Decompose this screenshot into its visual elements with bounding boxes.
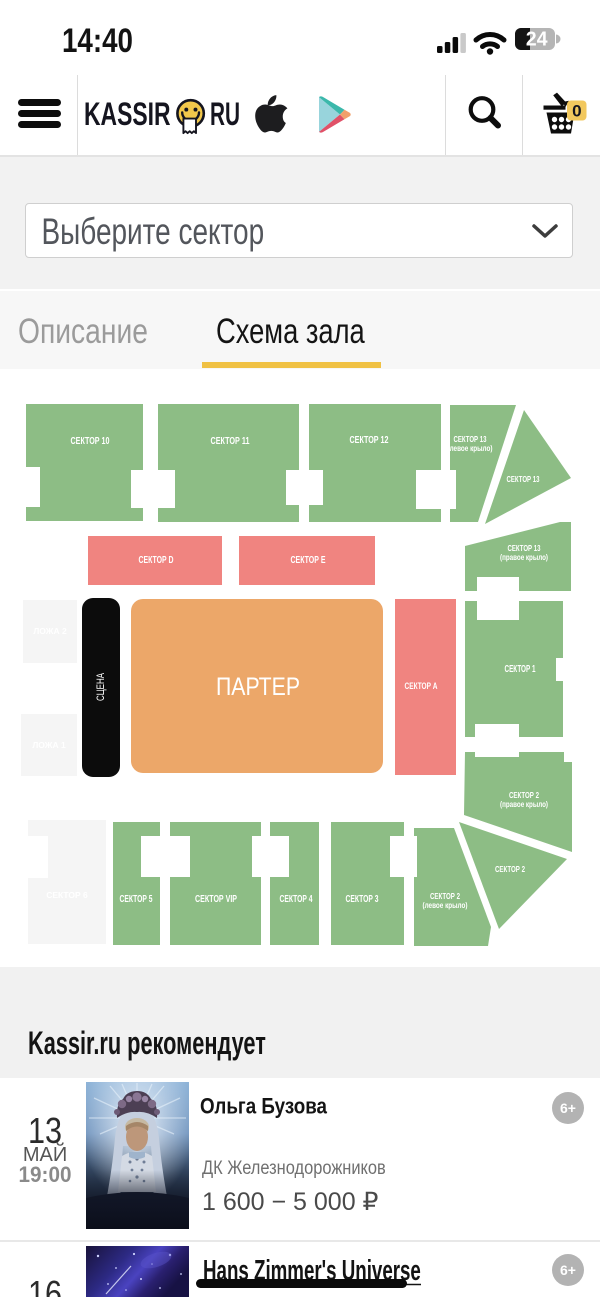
svg-text:СЕКТОР E: СЕКТОР E	[291, 555, 326, 566]
svg-text:СЕКТОР 10: СЕКТОР 10	[71, 436, 110, 447]
svg-text:(правое крыло): (правое крыло)	[500, 552, 548, 562]
svg-text:СЕКТОР 13: СЕКТОР 13	[507, 474, 540, 484]
svg-text:ЛОЖА 2: ЛОЖА 2	[33, 626, 67, 636]
svg-text:СЕКТОР D: СЕКТОР D	[139, 555, 174, 566]
svg-text:Схема зала: Схема зала	[216, 312, 365, 351]
svg-text:KASSIR: KASSIR	[84, 96, 171, 132]
svg-text:0: 0	[572, 102, 581, 121]
svg-text:Выберите сектор: Выберите сектор	[42, 210, 265, 252]
svg-text:СЕКТОР 6: СЕКТОР 6	[46, 890, 88, 900]
svg-text:СЕКТОР 5: СЕКТОР 5	[120, 894, 153, 905]
svg-text:СЕКТОР 2: СЕКТОР 2	[495, 864, 525, 874]
svg-text:ЛОЖА 1: ЛОЖА 1	[32, 740, 66, 750]
svg-text:СЕКТОР 4: СЕКТОР 4	[280, 894, 313, 905]
svg-text:24: 24	[526, 28, 548, 50]
svg-text:1 600 − 5 000 ₽: 1 600 − 5 000 ₽	[202, 1188, 379, 1216]
svg-text:ПАРТЕР: ПАРТЕР	[216, 673, 300, 701]
svg-text:(левое крыло): (левое крыло)	[423, 900, 468, 910]
svg-text:СЕКТОР 3: СЕКТОР 3	[346, 894, 379, 905]
svg-text:ДК Железнодорожников: ДК Железнодорожников	[202, 1157, 386, 1178]
svg-text:СЕКТОР 11: СЕКТОР 11	[211, 436, 250, 447]
svg-text:СЕКТОР 1: СЕКТОР 1	[505, 664, 536, 675]
svg-text:Описание: Описание	[18, 311, 148, 351]
svg-text:СЕКТОР 12: СЕКТОР 12	[350, 435, 389, 446]
svg-text:СЕКТОР VIP: СЕКТОР VIP	[195, 894, 237, 905]
svg-text:СЦЕНА: СЦЕНА	[95, 673, 107, 701]
svg-text:19:00: 19:00	[19, 1162, 72, 1187]
svg-text:(правое крыло): (правое крыло)	[500, 799, 548, 809]
svg-text:Kassir.ru рекомендует: Kassir.ru рекомендует	[28, 1025, 266, 1061]
svg-text:RU: RU	[210, 97, 240, 133]
svg-text:(левое крыло): (левое крыло)	[448, 443, 493, 453]
svg-text:СЕКТОР A: СЕКТОР A	[405, 681, 438, 691]
svg-text:16: 16	[28, 1275, 62, 1297]
svg-text:14:40: 14:40	[62, 21, 133, 59]
svg-text:Ольга Бузова: Ольга Бузова	[200, 1094, 328, 1119]
